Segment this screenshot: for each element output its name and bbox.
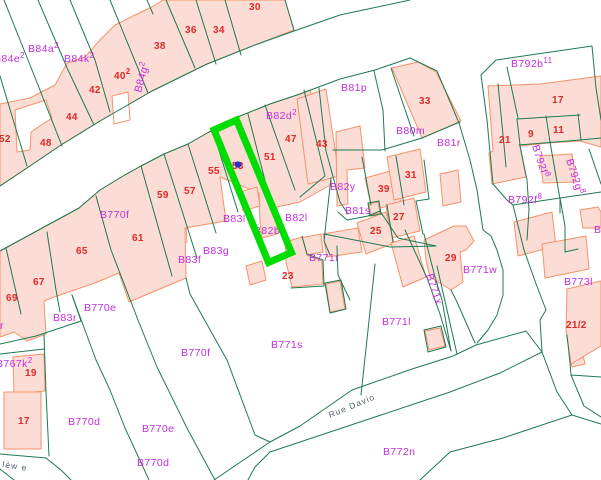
- svg-text:55: 55: [208, 166, 220, 177]
- svg-text:B770f: B770f: [100, 209, 129, 221]
- svg-text:B83r: B83r: [53, 312, 77, 324]
- svg-text:B792f8: B792f8: [508, 192, 542, 206]
- svg-text:47: 47: [285, 134, 297, 145]
- svg-text:B82l: B82l: [285, 212, 308, 224]
- svg-text:B772n: B772n: [383, 446, 415, 458]
- svg-text:B7: B7: [594, 224, 601, 236]
- svg-text:B770d: B770d: [137, 457, 169, 469]
- svg-text:52: 52: [0, 134, 11, 145]
- svg-text:B83l: B83l: [223, 213, 246, 225]
- svg-text:B770e: B770e: [84, 302, 116, 314]
- svg-text:B80m: B80m: [396, 125, 425, 137]
- svg-text:21/2: 21/2: [566, 320, 587, 331]
- svg-text:38: 38: [154, 41, 166, 52]
- svg-text:43: 43: [316, 139, 328, 150]
- svg-text:44: 44: [66, 112, 78, 123]
- svg-text:36: 36: [185, 25, 197, 36]
- svg-text:25: 25: [370, 226, 382, 237]
- svg-text:B83f: B83f: [178, 254, 201, 266]
- svg-text:9: 9: [528, 129, 534, 140]
- svg-text:67: 67: [33, 277, 45, 288]
- svg-text:B770d: B770d: [68, 416, 100, 428]
- svg-text:17: 17: [552, 95, 564, 106]
- svg-text:30: 30: [249, 2, 261, 13]
- svg-text:r: r: [0, 320, 4, 332]
- svg-text:B771l: B771l: [382, 316, 411, 328]
- svg-text:48: 48: [40, 138, 52, 149]
- svg-text:B82y: B82y: [330, 181, 356, 193]
- svg-text:B770f: B770f: [181, 347, 210, 359]
- svg-text:B770e: B770e: [142, 423, 174, 435]
- svg-text:B771r: B771r: [309, 252, 339, 264]
- svg-text:B771s: B771s: [271, 339, 303, 351]
- svg-text:59: 59: [157, 190, 169, 201]
- svg-text:29: 29: [445, 253, 457, 264]
- svg-text:B83g: B83g: [203, 245, 229, 257]
- svg-text:39: 39: [378, 184, 390, 195]
- svg-text:69: 69: [6, 293, 18, 304]
- svg-text:21: 21: [499, 135, 511, 146]
- svg-text:B81s: B81s: [345, 205, 371, 217]
- svg-text:B773l: B773l: [564, 276, 593, 288]
- svg-text:61: 61: [132, 233, 144, 244]
- svg-text:42: 42: [89, 85, 101, 96]
- svg-text:B81r: B81r: [437, 137, 461, 149]
- svg-text:11: 11: [553, 125, 564, 136]
- svg-text:33: 33: [419, 96, 431, 107]
- svg-text:B81p: B81p: [341, 82, 367, 94]
- svg-text:27: 27: [393, 212, 405, 223]
- svg-text:65: 65: [76, 246, 88, 257]
- svg-text:34: 34: [213, 25, 225, 36]
- svg-text:17: 17: [18, 416, 30, 427]
- svg-text:51: 51: [264, 152, 276, 163]
- svg-text:57: 57: [184, 186, 196, 197]
- svg-text:23: 23: [282, 271, 294, 282]
- svg-text:31: 31: [405, 170, 417, 181]
- svg-text:19: 19: [25, 368, 37, 379]
- svg-text:B771w: B771w: [463, 264, 497, 276]
